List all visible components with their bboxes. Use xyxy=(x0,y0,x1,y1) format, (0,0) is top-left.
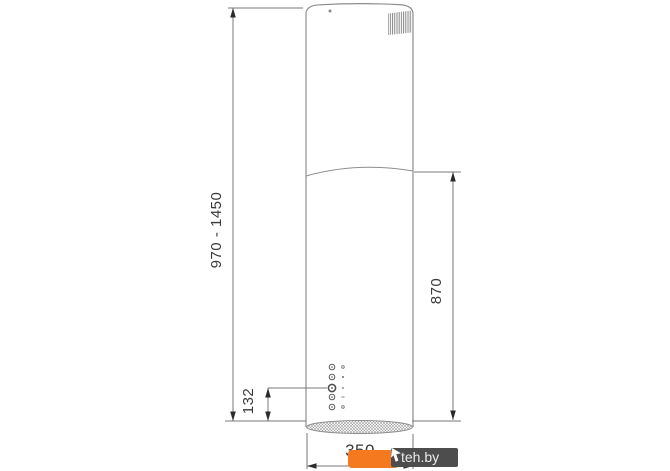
watermark: teh.by xyxy=(348,448,460,469)
dim-total-height-label: 970 - 1450 xyxy=(208,192,225,269)
watermark-plate: teh.by xyxy=(391,448,458,467)
arrow-up-icon xyxy=(230,8,236,18)
arrow-down-icon xyxy=(230,412,236,422)
bottom-filter-mesh-icon xyxy=(307,421,413,434)
indicator-icon xyxy=(342,376,344,378)
control-button-dot xyxy=(331,387,333,389)
hood-body xyxy=(306,4,413,434)
arrow-left-icon xyxy=(307,463,317,469)
indicator-icon xyxy=(342,366,345,369)
watermark-label: teh.by xyxy=(401,448,439,467)
indicator-icon xyxy=(342,387,344,389)
control-panel xyxy=(328,364,344,410)
hood-top-hole xyxy=(329,10,332,13)
arrow-down-icon xyxy=(450,411,456,421)
hood-seam-line xyxy=(306,167,413,176)
dim-controls-offset-label: 132 xyxy=(240,388,257,415)
hood-body-outline xyxy=(306,4,413,427)
control-button-dot xyxy=(331,376,333,378)
dim-total-height: 970 - 1450 xyxy=(208,8,306,421)
dim-controls-offset: 132 xyxy=(240,388,327,421)
control-button-dot xyxy=(331,406,333,408)
arrow-down-icon xyxy=(265,412,271,422)
control-button-dot xyxy=(331,366,333,368)
dim-body-height-label: 870 xyxy=(428,278,445,305)
dim-body-height: 870 xyxy=(412,172,461,421)
arrow-up-icon xyxy=(265,388,271,398)
indicator-icon xyxy=(342,406,345,409)
control-button-dot xyxy=(331,396,333,398)
arrow-up-icon xyxy=(450,172,456,182)
product-dimension-image: 970 - 1450 870 132 350 xyxy=(0,0,670,471)
watermark-pointer-icon xyxy=(391,448,402,463)
hood-diagram: 970 - 1450 870 132 350 xyxy=(0,0,670,471)
vent-grille-icon xyxy=(388,11,412,36)
